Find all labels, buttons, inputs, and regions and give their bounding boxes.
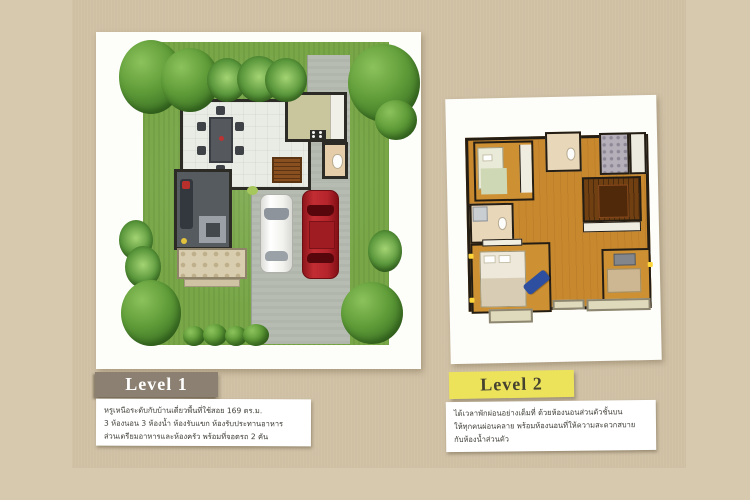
- dresser: [482, 239, 522, 247]
- light-marker: [469, 298, 474, 303]
- stairs: [582, 176, 642, 222]
- shrub: [183, 326, 205, 346]
- dining-chair: [197, 146, 206, 155]
- pillow: [482, 154, 492, 161]
- terrace-step: [184, 279, 240, 287]
- level1-site-plan: [143, 42, 389, 345]
- bed: [477, 147, 504, 190]
- red-cushion: [182, 181, 190, 189]
- shrub: [265, 58, 307, 102]
- floor-lamp: [181, 238, 187, 244]
- caption-line: ให้ทุกคนผ่อนคลาย พร้อมห้องนอนที่ให้ความส…: [454, 418, 648, 433]
- shrub: [121, 280, 181, 346]
- bedroom-1: [473, 140, 534, 201]
- bath-counter: [629, 132, 647, 174]
- master-bed: [479, 251, 526, 308]
- white-car: [260, 194, 293, 273]
- shrub: [341, 282, 403, 344]
- red-car: [302, 190, 339, 279]
- terrace: [177, 248, 247, 279]
- brochure-page: Level 1 หรูเหนือระดับกับบ้านเดี่ยวพื้นที…: [0, 0, 750, 500]
- tree: [375, 100, 417, 140]
- light-marker: [648, 262, 653, 267]
- windshield: [307, 205, 334, 216]
- entry-plant: [247, 186, 258, 195]
- level2-label: Level 2: [449, 370, 574, 399]
- master-bedroom: [470, 242, 551, 314]
- stair-well: [598, 184, 629, 218]
- windshield: [264, 208, 289, 220]
- hall-cabinet: [583, 221, 641, 232]
- dining-chair: [197, 122, 206, 131]
- blanket: [481, 168, 508, 195]
- table-centerpiece: [219, 136, 224, 141]
- bathroom-top: [545, 131, 582, 172]
- level2-plan-card: [445, 95, 662, 364]
- shrub: [243, 324, 269, 346]
- toilet: [498, 217, 507, 230]
- palm: [368, 230, 402, 272]
- stairs: [272, 157, 302, 183]
- level1-caption: หรูเหนือระดับกับบ้านเดี่ยวพื้นที่ใช้สอย …: [96, 399, 311, 447]
- caption-line: หรูเหนือระดับกับบ้านเดี่ยวพื้นที่ใช้สอย …: [104, 404, 303, 418]
- level2-caption: ได้เวลาพักผ่อนอย่างเต็มที่ ด้วยห้องนอนส่…: [446, 400, 657, 452]
- dining-chair: [235, 122, 244, 131]
- blue-daybed: [522, 269, 551, 295]
- level1-label: Level 1: [95, 372, 218, 397]
- dining-chair: [235, 146, 244, 155]
- balcony: [489, 308, 533, 323]
- closet: [519, 144, 532, 192]
- stove: [310, 130, 326, 139]
- desk: [614, 253, 636, 265]
- rear-window: [307, 253, 334, 263]
- toilet: [566, 148, 575, 161]
- pillow: [484, 255, 496, 263]
- shower: [473, 206, 488, 221]
- bathroom: [322, 142, 348, 179]
- shrub: [203, 324, 227, 346]
- pillow: [499, 255, 511, 263]
- seat: [607, 268, 641, 293]
- blanket: [481, 278, 526, 307]
- level1-label-text: Level 1: [125, 374, 188, 395]
- car-roof: [309, 221, 335, 249]
- rear-window: [265, 251, 288, 261]
- level2-floor-plan: [465, 130, 652, 326]
- kitchen-counter: [330, 95, 344, 139]
- bathroom-left: [469, 203, 514, 244]
- dining-chair: [216, 106, 225, 115]
- coffee-table: [206, 223, 220, 237]
- caption-line: ส่วนเตรียมอาหารและห้องครัว พร้อมที่จอดรถ…: [104, 430, 303, 444]
- caption-line: กับห้องน้ำส่วนตัว: [454, 431, 648, 446]
- tiled-bathroom: [599, 132, 630, 175]
- light-marker: [468, 254, 473, 259]
- balcony: [552, 299, 584, 310]
- level1-plan-card: [96, 32, 421, 369]
- toilet: [332, 154, 343, 169]
- caption-line: 3 ห้องนอน 3 ห้องน้ำ ห้องรับแขก ห้องรับปร…: [104, 417, 303, 431]
- living-room: [174, 169, 232, 250]
- balcony: [586, 298, 650, 311]
- level2-label-text: Level 2: [480, 373, 543, 395]
